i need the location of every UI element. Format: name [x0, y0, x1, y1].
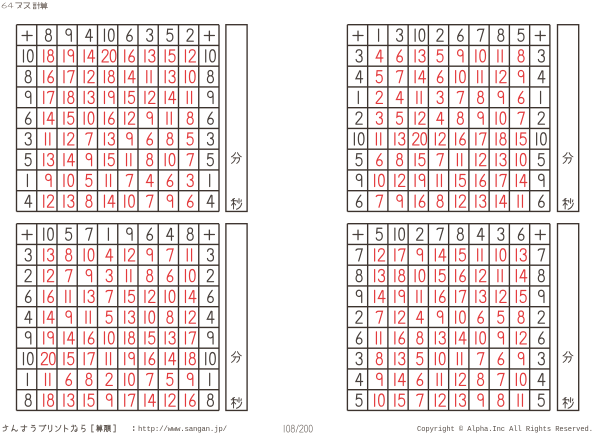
svg-text:http://www.sangan.jp/: http://www.sangan.jp/: [138, 426, 228, 434]
svg-text:Copyright © Alpha.Inc All Righ: Copyright © Alpha.Inc All Rights Reserve…: [417, 425, 593, 434]
